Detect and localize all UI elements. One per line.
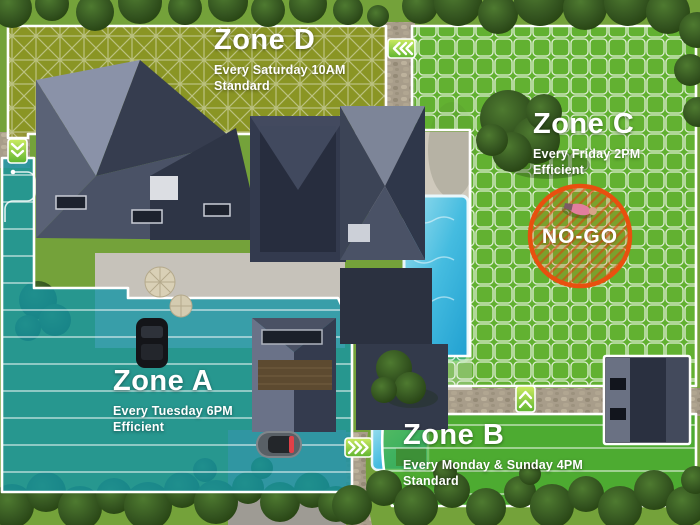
parked-car [136, 318, 168, 368]
chevrons-up-icon [516, 386, 535, 412]
no-go-zone[interactable] [530, 186, 630, 286]
chevrons-left-icon [388, 39, 415, 58]
robot-mower[interactable] [256, 431, 302, 458]
property-map [0, 0, 700, 525]
garden-shed [604, 356, 690, 444]
chevrons-right-icon [345, 438, 372, 457]
chevrons-down-icon [8, 139, 27, 163]
mowing-path-start-dot [11, 170, 16, 175]
